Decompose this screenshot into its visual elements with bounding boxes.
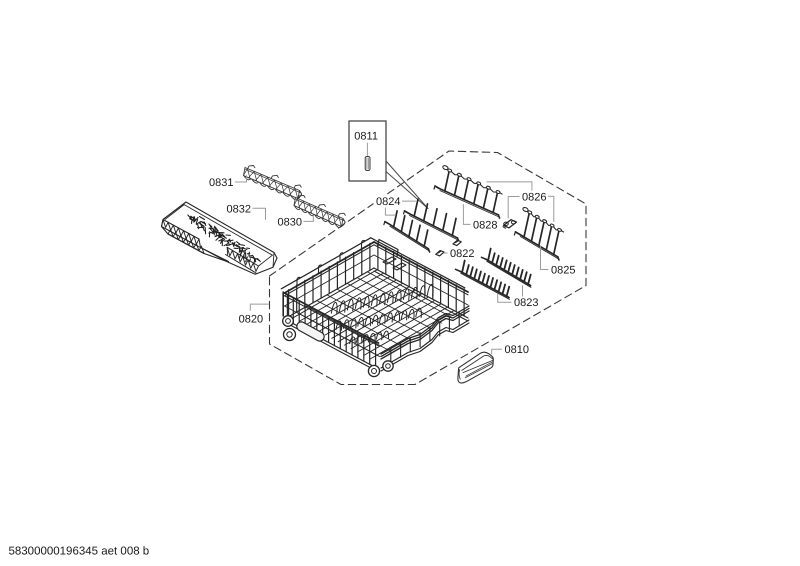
svg-text:0828: 0828 — [473, 220, 497, 232]
svg-text:0811: 0811 — [354, 130, 378, 142]
svg-text:0826: 0826 — [522, 192, 546, 204]
svg-text:0820: 0820 — [239, 313, 263, 325]
svg-text:0832: 0832 — [227, 204, 251, 216]
svg-text:0822: 0822 — [450, 248, 474, 260]
svg-text:58300000196345 aet 008 b: 58300000196345 aet 008 b — [9, 546, 150, 558]
svg-text:0831: 0831 — [209, 177, 233, 189]
svg-text:0810: 0810 — [505, 344, 529, 356]
svg-text:0823: 0823 — [514, 297, 538, 309]
svg-text:0830: 0830 — [278, 216, 302, 228]
svg-text:0825: 0825 — [551, 264, 575, 276]
svg-text:0824: 0824 — [376, 196, 400, 208]
